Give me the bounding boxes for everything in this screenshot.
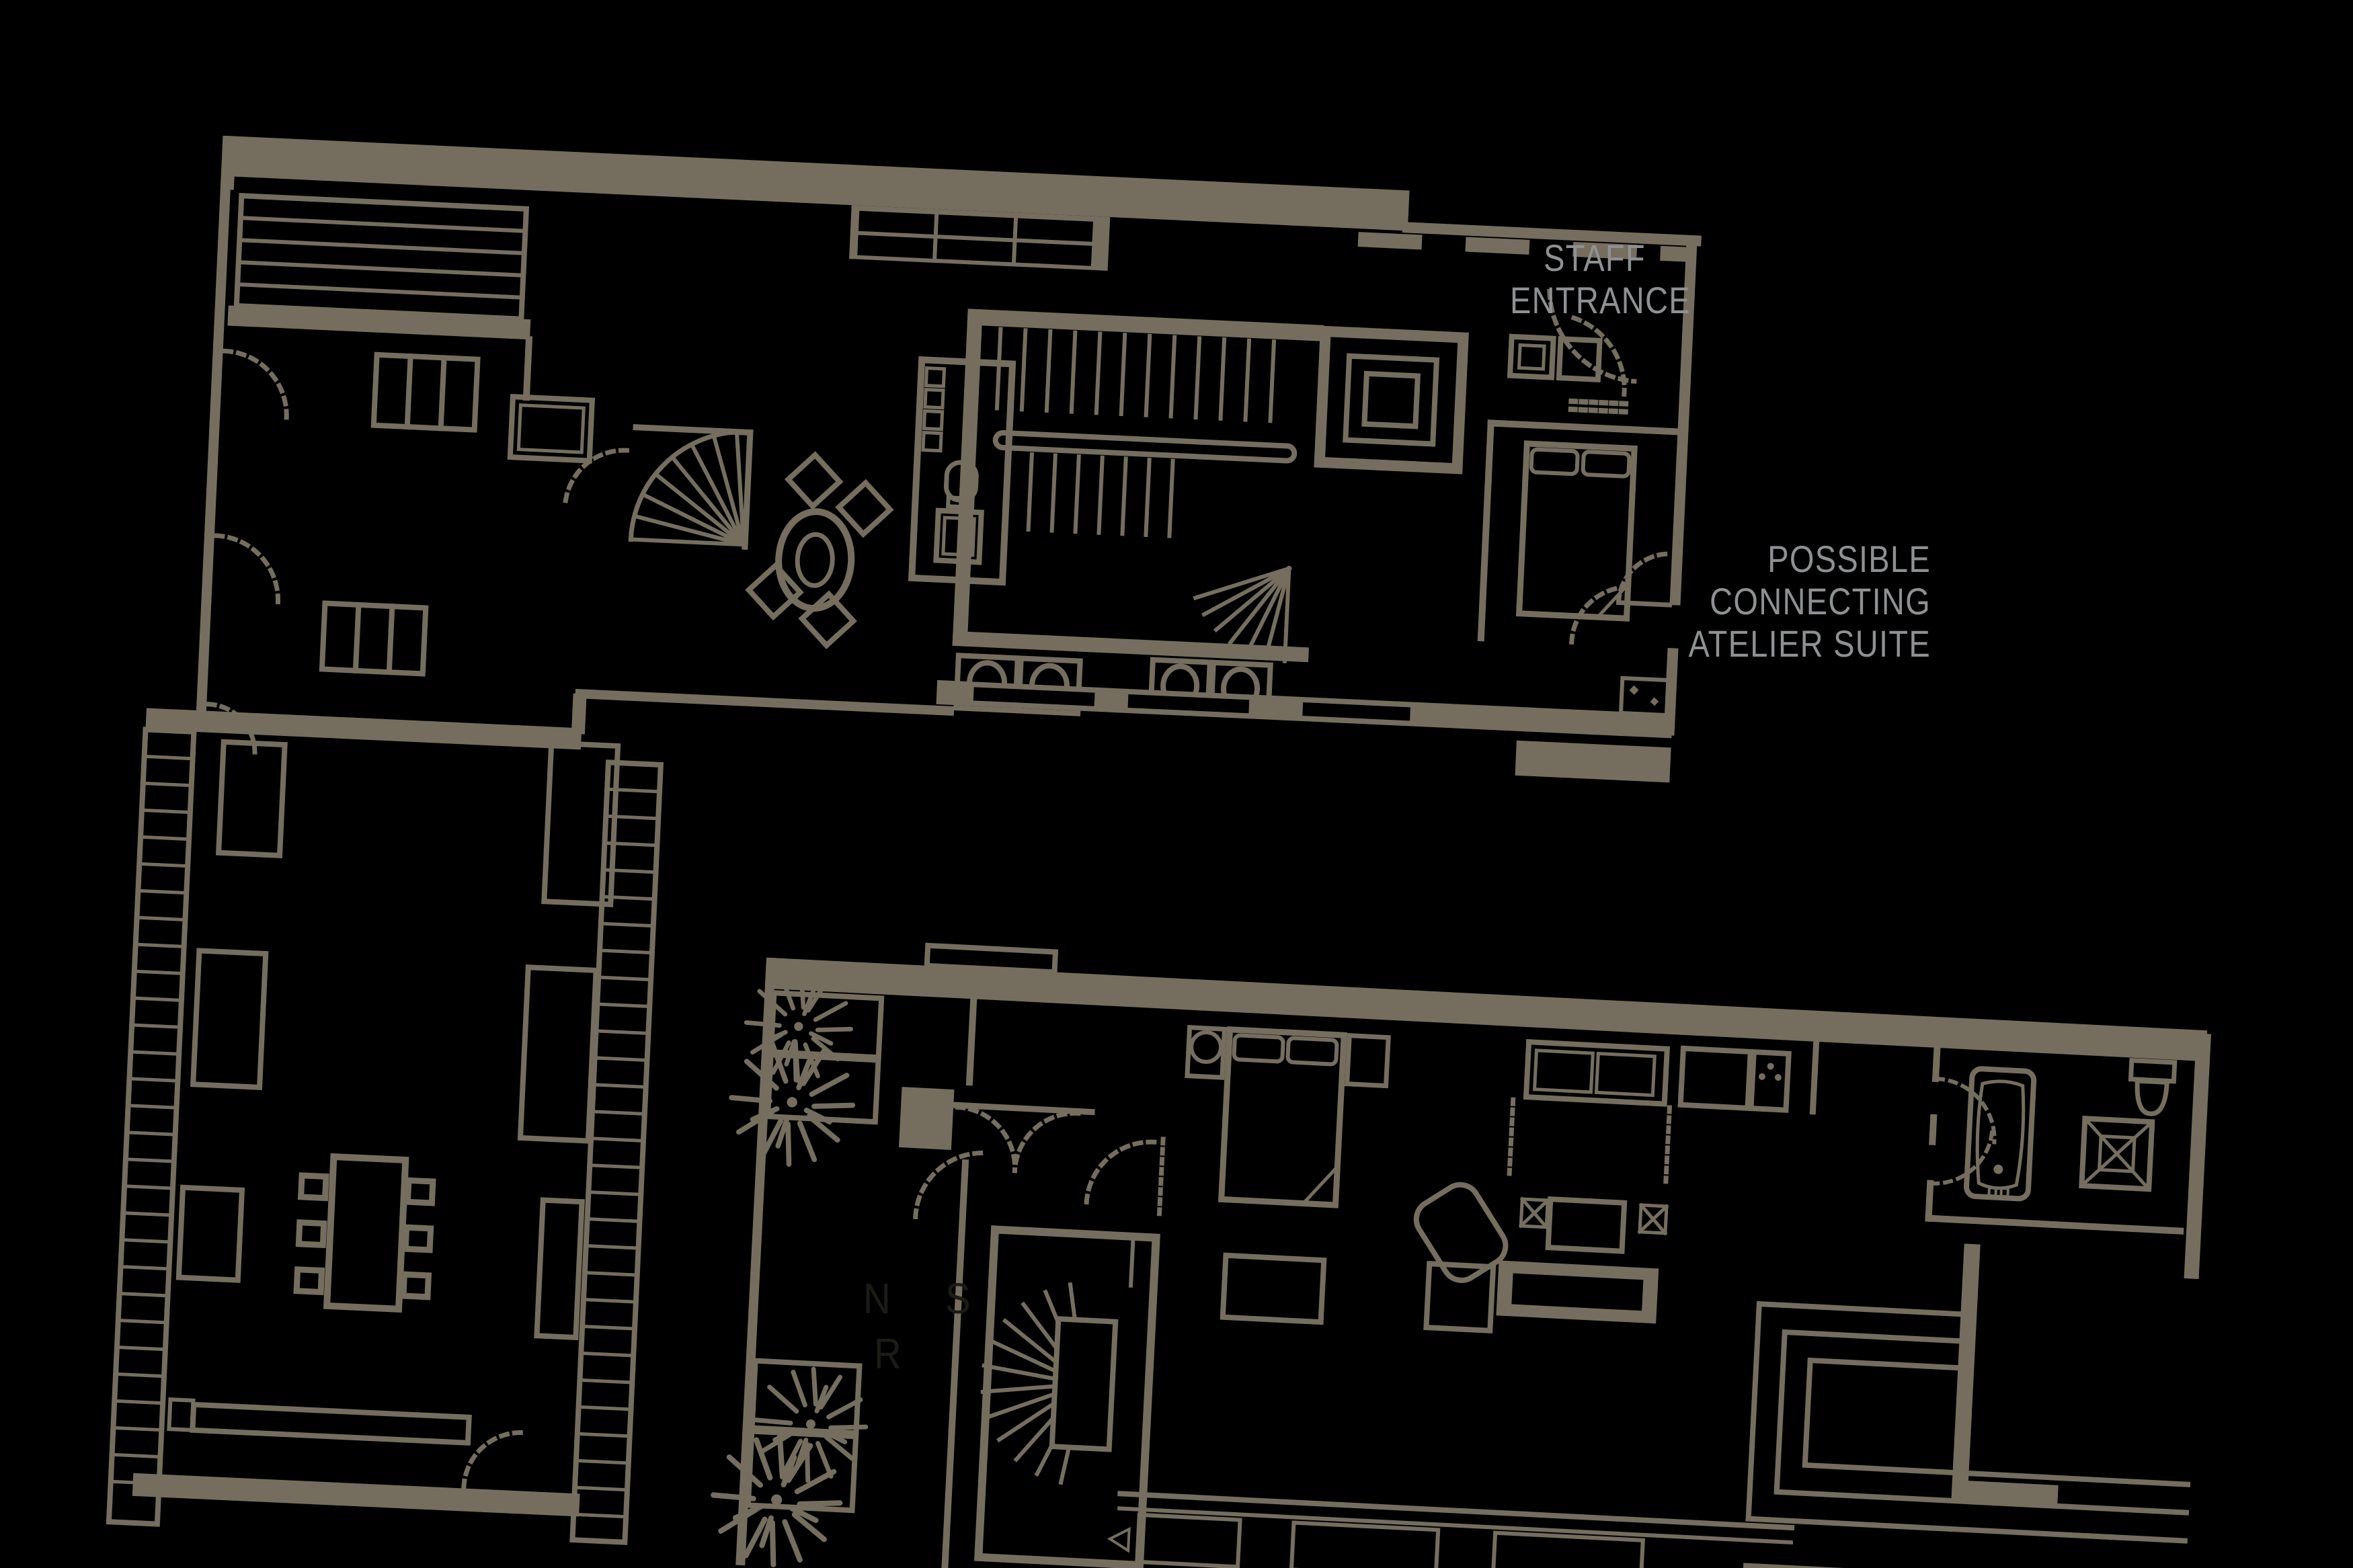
obscured-label-fragment: R bbox=[874, 1332, 902, 1375]
kitchen bbox=[1681, 1035, 1817, 1112]
floor-plan-drawing bbox=[0, 0, 2353, 1568]
obscured-label-fragment: N bbox=[863, 1277, 891, 1320]
roof-terrace bbox=[109, 724, 662, 1545]
planters bbox=[177, 727, 618, 1338]
lower-floor-plan bbox=[708, 936, 2212, 1568]
atelier-suite-label: POSSIBLE CONNECTING ATELIER SUITE bbox=[1648, 538, 1931, 665]
obscured-label-fragment: S bbox=[945, 1277, 971, 1320]
bedroom-lower bbox=[1175, 1028, 1388, 1325]
stair-lower bbox=[974, 1229, 1156, 1565]
dining-terrace-table bbox=[296, 1155, 434, 1311]
study-dressing bbox=[1404, 1036, 1675, 1339]
winter-garden bbox=[708, 971, 888, 1568]
upper-floor-plan bbox=[109, 133, 1699, 1568]
staff-entrance-label: STAFF ENTRANCE bbox=[1510, 237, 1679, 321]
elevator bbox=[1319, 326, 1463, 472]
bathroom bbox=[1929, 1048, 2189, 1231]
floor-plan-page: { "canvas": {"width": 3500, "height": 23… bbox=[0, 0, 2353, 1568]
